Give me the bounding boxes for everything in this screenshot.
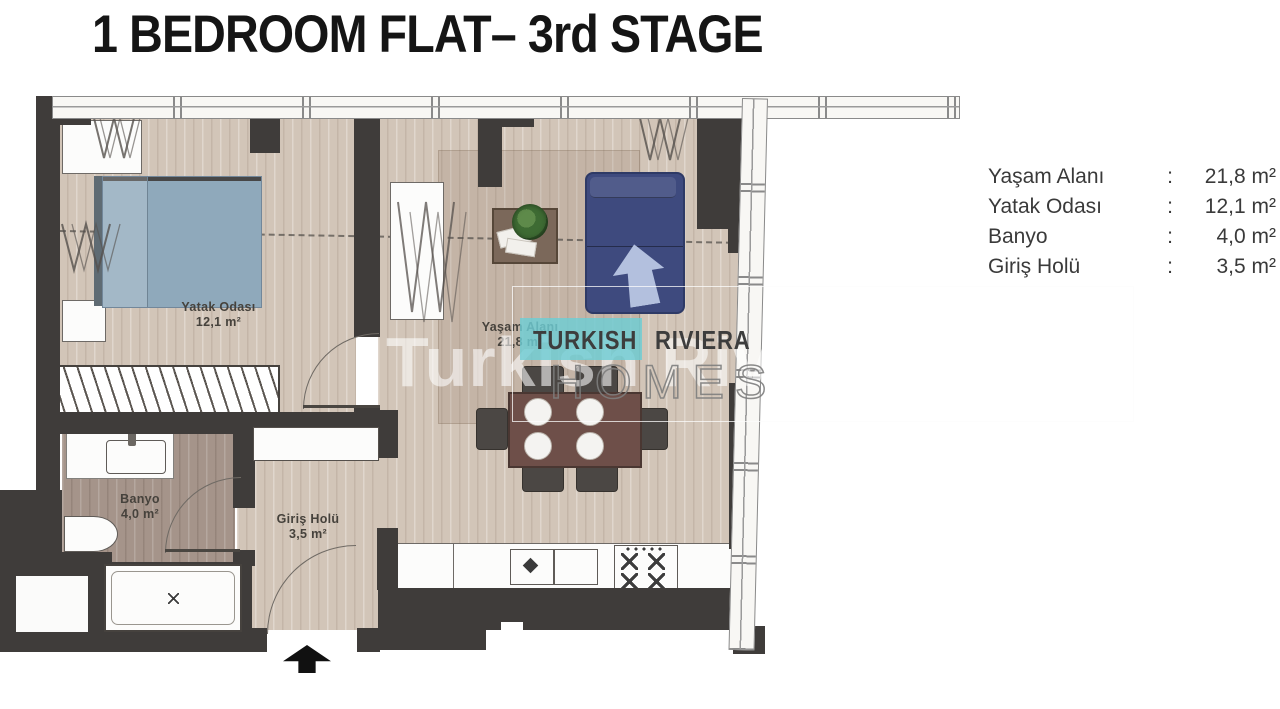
stove-knobs [624,547,666,551]
bedroom-name: Yatak Odası [181,300,255,314]
wall-hall-bottom-right [357,628,380,652]
drain-icon [168,593,179,604]
bathroom-door-leaf [165,549,240,552]
legend-value: 21,8 m² [1184,165,1276,189]
kitchen-sink-drainer [554,549,598,585]
watermark-brand-right: RIVIERA [655,325,751,356]
legend-value: 4,0 m² [1184,225,1276,249]
legend-row: Yaşam Alanı : 21,8 m² [988,162,1276,192]
service-shaft [16,576,88,632]
legend-separator: : [1156,195,1184,219]
floor-plan-page: 1 BEDROOM FLAT– 3rd STAGE [0,0,1280,709]
hall-name: Giriş Holü [277,512,340,526]
plant-icon [512,204,548,240]
legend-row: Banyo : 4,0 m² [988,222,1276,252]
wall-bedroom-living [354,115,380,337]
area-legend: Yaşam Alanı : 21,8 m² Yatak Odası : 12,1… [988,162,1276,282]
bedroom-wardrobe [58,365,280,419]
legend-label: Yaşam Alanı [988,165,1156,189]
wall-pier-living-top-stub [478,109,502,187]
watermark-brand-bottom: HOMES [550,354,777,409]
bathroom-label: Banyo 4,0 m² [95,492,185,522]
wall-hall-living-upper [377,410,398,458]
wall-top-right-block [697,109,745,229]
legend-separator: : [1156,255,1184,279]
watermark-brand-left: TURKISH [533,325,637,356]
hall-closet [253,427,379,461]
plate [524,432,552,460]
bed-divider [147,177,148,307]
clothes-hanger-icon [396,192,476,332]
bedroom-door-leaf [303,405,380,408]
entrance-arrow-icon [283,645,331,673]
bathtub [104,564,242,632]
window-band-top [52,96,960,119]
bedroom-label: Yatak Odası 12,1 m² [146,300,291,330]
legend-row: Giriş Holü : 3,5 m² [988,252,1276,282]
bedroom-area: 12,1 m² [196,315,241,329]
faucet-icon [128,432,136,446]
curtain-icon [92,116,152,162]
bathroom-name: Banyo [120,492,160,506]
legend-label: Yatak Odası [988,195,1156,219]
page-title: 1 BEDROOM FLAT– 3rd STAGE [92,4,763,65]
burner-icon [648,553,665,570]
coffee-table-paper [505,238,537,258]
bathroom-area: 4,0 m² [121,507,159,521]
wall-notch [501,622,523,632]
bathroom-sink [106,440,166,474]
kitchen-cabinet [390,543,454,590]
burner-icon [621,553,638,570]
legend-separator: : [1156,225,1184,249]
hall-area: 3,5 m² [289,527,327,541]
plate [576,432,604,460]
hall-label: Giriş Holü 3,5 m² [258,512,358,542]
sofa-back-cushion [590,177,676,198]
legend-row: Yatak Odası : 12,1 m² [988,192,1276,222]
legend-label: Banyo [988,225,1156,249]
dining-chair [476,408,508,450]
curtain-icon [638,116,694,164]
legend-label: Giriş Holü [988,255,1156,279]
legend-value: 3,5 m² [1184,255,1276,279]
bedroom-nightstand [62,300,106,342]
wall-hall-living-lower [377,528,398,590]
legend-separator: : [1156,165,1184,189]
wall-kitchen-bottom-step [378,588,486,650]
curtain-icon [60,222,132,274]
legend-value: 12,1 m² [1184,195,1276,219]
